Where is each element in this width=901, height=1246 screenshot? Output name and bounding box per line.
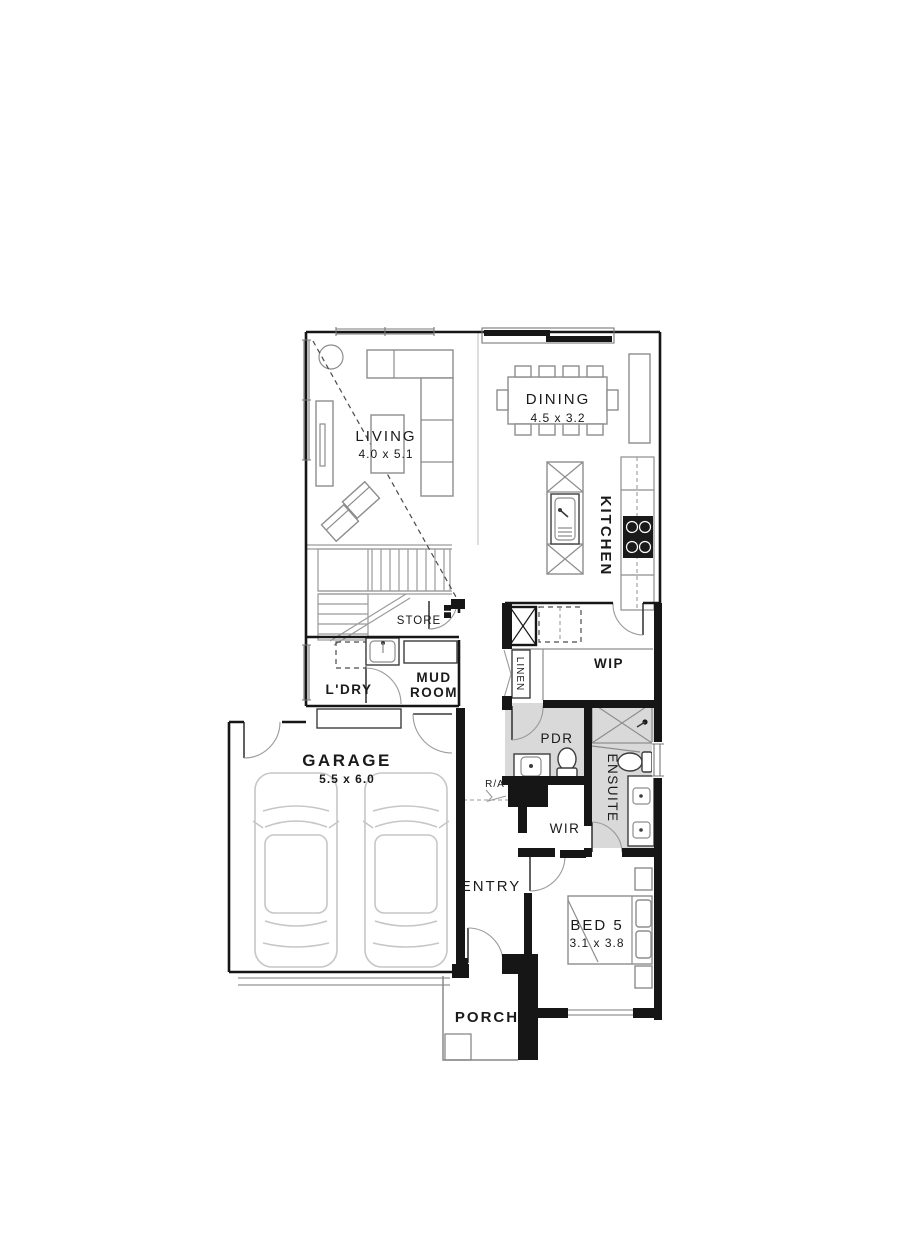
window-bed5 [568,1010,633,1015]
ensuite-toilet [618,752,652,772]
window-ensuite [652,742,664,778]
car [253,773,339,967]
dining-chair [587,424,603,435]
porch-pier [445,1034,471,1060]
store-label: STORE [397,615,441,627]
ensuite-label: ENSUITE [605,753,620,822]
dining-chair [607,390,618,410]
meter-box-icon [444,605,451,618]
bed5-dimension: 3.1 x 3.8 [569,936,624,950]
return-air-label: R/A [485,779,505,790]
ensuite-vanity [628,776,654,846]
kitchen-label: KITCHEN [597,496,614,577]
duct-box [510,607,536,645]
floor-plan-svg: LIVING 4.0 x 5.1 DINING 4.5 x 3.2 KITCHE… [0,0,901,1246]
pantry-shelves [512,649,653,700]
living-label: LIVING [355,428,416,445]
return-air-duct [508,785,548,807]
bedside-table [635,966,652,988]
cooktop [623,516,653,558]
linen-label: LINEN [514,657,525,691]
wip-pantry [504,603,653,700]
wip-label: WIP [594,656,624,671]
pillow [636,900,651,927]
entry-label: ENTRY [461,878,522,895]
dining-chair [497,390,508,410]
bifold-door [504,650,511,698]
dining-chair [587,366,603,377]
living-dimension: 4.0 x 5.1 [358,447,413,461]
laundry-label: L'DRY [326,682,373,697]
porch-label: PORCH [455,1009,519,1026]
dining-chair [539,366,555,377]
stairs [306,545,452,645]
garage-panel-door [238,978,450,985]
kitchen-island [547,462,583,574]
wir-label: WIR [550,821,581,836]
island-sink [551,494,579,544]
bed5-label: BED 5 [570,917,623,934]
pillow [636,931,651,958]
kitchen-bench [621,457,654,610]
buffet-cabinet [629,354,650,443]
garage-shelf-bench [317,709,401,728]
garage-dimension: 5.5 x 6.0 [319,772,375,786]
car [363,773,449,967]
ra-leader-line [486,790,506,801]
tv-unit [316,401,333,486]
pdr-vanity [514,754,550,778]
washer-space [336,642,366,668]
pdr-toilet [557,748,577,777]
laundry-trough [366,638,399,665]
floor-plan-page: LIVING 4.0 x 5.1 DINING 4.5 x 3.2 KITCHE… [0,0,901,1246]
dining-label: DINING [526,391,591,408]
dining-chair [539,424,555,435]
dining-chair [515,424,531,435]
living-room [313,333,478,597]
mudroom-label-line1: MUD [416,670,451,685]
sliding-door-dining [482,328,614,343]
dining-dimension: 4.5 x 3.2 [530,411,585,425]
dining-chair [515,366,531,377]
garage-label: GARAGE [302,751,392,770]
dining-chair [563,366,579,377]
dining-chair [563,424,579,435]
pdr-label: PDR [540,731,573,746]
mudroom-label-line2: ROOM [410,685,458,700]
mudroom-bench [404,641,457,663]
bedside-table [635,868,652,890]
